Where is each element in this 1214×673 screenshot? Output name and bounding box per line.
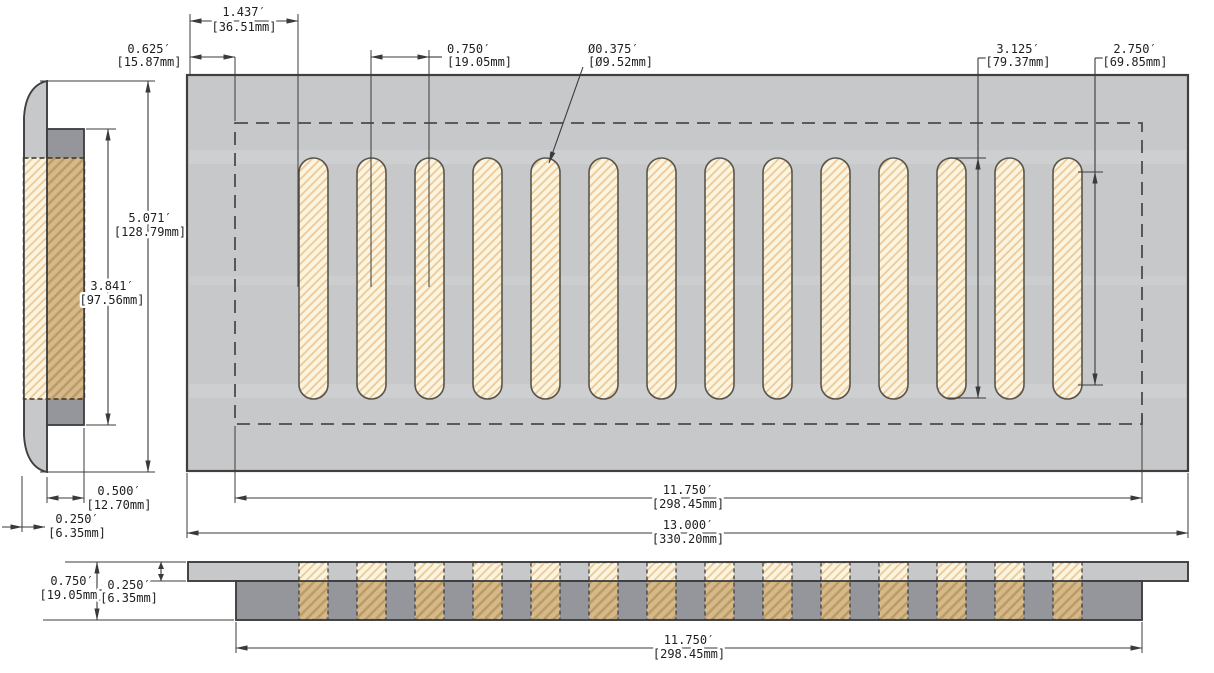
front-slot-hatch-plate <box>1053 563 1082 581</box>
dim-label: 0.250′ <box>107 578 150 592</box>
vent-slot <box>821 158 850 399</box>
front-slot-hatch-box <box>415 581 444 619</box>
side-view-slot-hatch-tan <box>47 158 84 399</box>
plate-sheen <box>189 150 1186 164</box>
front-slot-hatch-box <box>647 581 676 619</box>
vent-slot <box>879 158 908 399</box>
front-slot-hatch-box <box>937 581 966 619</box>
dim-label: [298.45mm] <box>652 497 724 511</box>
arrowhead <box>158 574 164 581</box>
front-slot-hatch-box <box>589 581 618 619</box>
dim-label: 0.750′ <box>447 42 490 56</box>
dim-label: 11.750′ <box>664 633 715 647</box>
dim-label: [79.37mm] <box>985 55 1050 69</box>
dim-label: 0.625′ <box>127 42 170 56</box>
vent-slot <box>937 158 966 399</box>
dim-box-depth: 0.500′ [12.70mm] <box>47 428 152 512</box>
dim-label: 0.750′ <box>50 574 93 588</box>
dim-label: [298.45mm] <box>653 647 725 661</box>
arrowhead <box>158 562 164 569</box>
dim-label: 5.071′ <box>128 211 171 225</box>
front-slot-hatch-plate <box>299 563 328 581</box>
front-slot-hatch-plate <box>821 563 850 581</box>
front-slot-hatch-box <box>821 581 850 619</box>
dim-label: Ø0.375′ <box>588 42 639 56</box>
front-slot-hatch-box <box>299 581 328 619</box>
faceplate <box>187 75 1188 471</box>
front-slot-hatch-box <box>879 581 908 619</box>
dim-box-height: 3.841′ [97.56mm] <box>79 129 144 425</box>
dim-box-width-front: 11.750′ [298.45mm] <box>236 622 1142 661</box>
front-slot-hatch-box <box>705 581 734 619</box>
dim-label: 3.841′ <box>90 279 133 293</box>
dim-label: 0.500′ <box>97 484 140 498</box>
dim-label: 3.125′ <box>996 42 1039 56</box>
dim-label: 2.750′ <box>1113 42 1156 56</box>
dim-label: [36.51mm] <box>211 20 276 34</box>
front-slot-hatch-box <box>531 581 560 619</box>
top-view <box>187 75 1188 471</box>
technical-drawing: 1.437′ [36.51mm] 0.625′ [15.87mm] 0.750′… <box>0 0 1214 673</box>
front-slot-hatch-plate <box>879 563 908 581</box>
dim-label: [69.85mm] <box>1102 55 1167 69</box>
vent-slot <box>473 158 502 399</box>
front-slot-hatch-box <box>995 581 1024 619</box>
vent-slot <box>589 158 618 399</box>
front-slot-hatch-plate <box>647 563 676 581</box>
front-view <box>188 562 1188 620</box>
front-slot-hatch-plate <box>763 563 792 581</box>
dim-label: [Ø9.52mm] <box>588 55 653 69</box>
dim-label: 0.250′ <box>55 512 98 526</box>
dim-label: 1.437′ <box>222 5 265 19</box>
dim-label: [19.05mm] <box>447 55 512 69</box>
front-slot-hatch-plate <box>415 563 444 581</box>
drawing-canvas: 1.437′ [36.51mm] 0.625′ [15.87mm] 0.750′… <box>0 0 1214 673</box>
dim-label: 11.750′ <box>663 483 714 497</box>
front-slot-hatch-plate <box>705 563 734 581</box>
vent-slot <box>995 158 1024 399</box>
front-slot-hatch-box <box>357 581 386 619</box>
dim-label: [128.79mm] <box>114 225 186 239</box>
dim-label: [97.56mm] <box>79 293 144 307</box>
front-slot-hatch-plate <box>995 563 1024 581</box>
vent-slot <box>705 158 734 399</box>
vent-slot <box>1053 158 1082 399</box>
dim-label: [19.05mm] <box>39 588 104 602</box>
front-slot-hatch-box <box>473 581 502 619</box>
front-slot-hatch-plate <box>589 563 618 581</box>
dim-label: [12.70mm] <box>86 498 151 512</box>
front-slot-hatch-plate <box>531 563 560 581</box>
vent-slot <box>647 158 676 399</box>
dim-label: [6.35mm] <box>48 526 106 540</box>
dim-label: 13.000′ <box>663 518 714 532</box>
dim-face-thickness: 0.250′ [6.35mm] <box>100 562 186 605</box>
front-slot-hatch-plate <box>473 563 502 581</box>
vent-slot <box>763 158 792 399</box>
front-slot-hatch-plate <box>937 563 966 581</box>
front-slot-hatch-box <box>763 581 792 619</box>
vent-slot <box>299 158 328 399</box>
front-slot-hatch-box <box>1053 581 1082 619</box>
front-slot-hatch-plate <box>357 563 386 581</box>
plate-sheen <box>189 276 1186 285</box>
vent-slot <box>531 158 560 399</box>
dim-label: [330.20mm] <box>652 532 724 546</box>
side-view-slot-hatch-cream <box>24 158 47 399</box>
side-view <box>24 81 85 472</box>
dim-label: [6.35mm] <box>100 591 158 605</box>
front-faceplate <box>188 562 1188 581</box>
dim-label: [15.87mm] <box>116 55 181 69</box>
plate-sheen <box>189 384 1186 398</box>
